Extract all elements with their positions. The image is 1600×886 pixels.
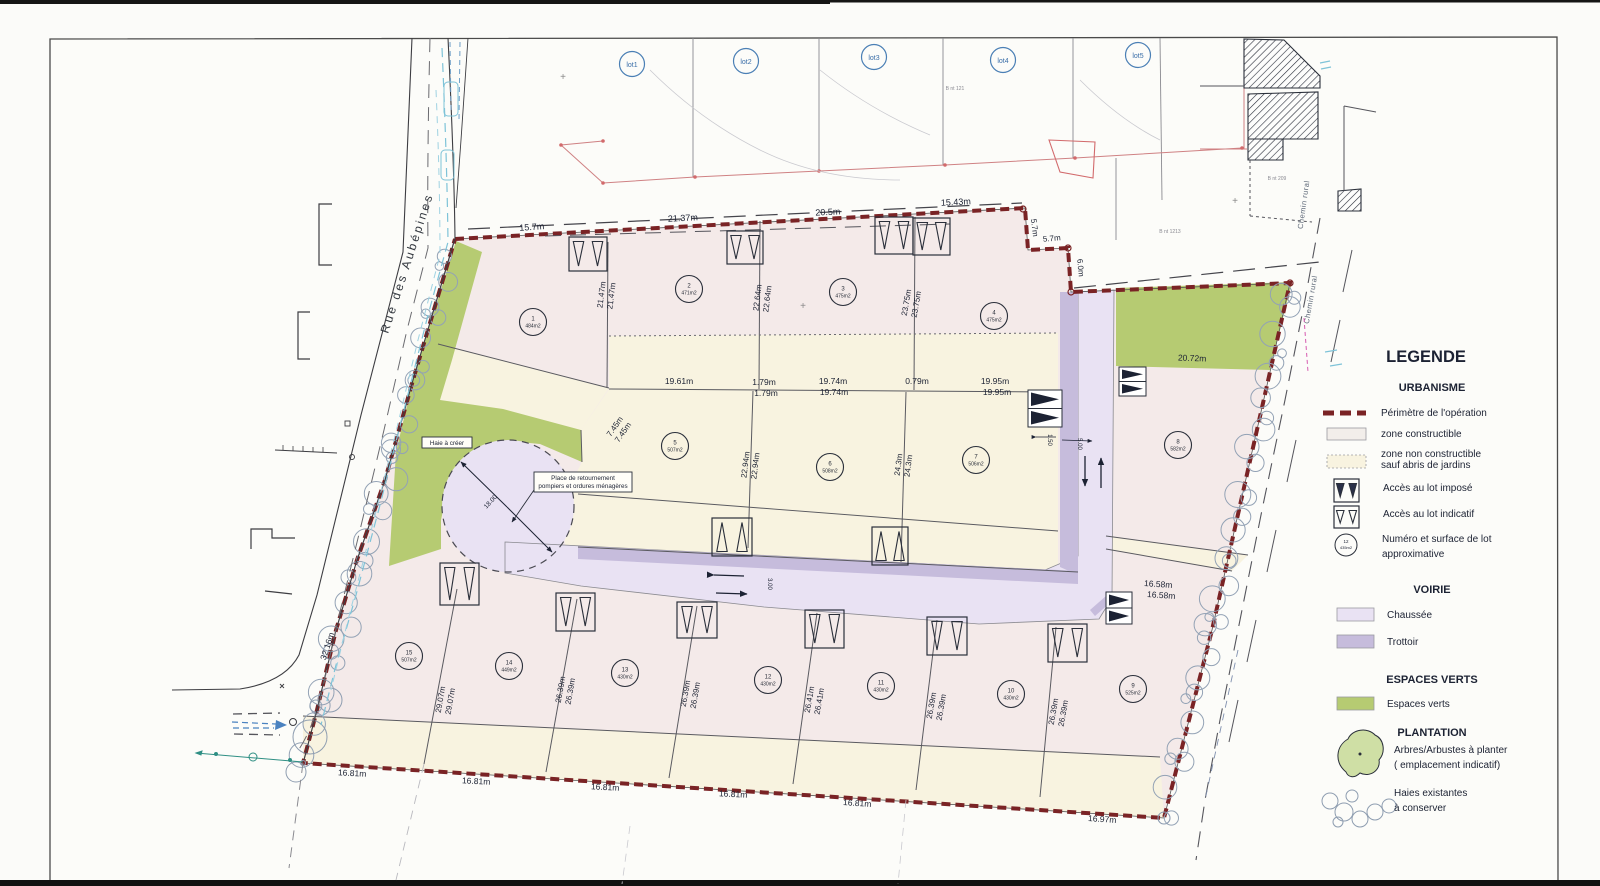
svg-text:Haies existantes: Haies existantes: [1394, 788, 1467, 799]
svg-text:Périmètre de l'opération: Périmètre de l'opération: [1381, 408, 1487, 419]
svg-text:19.74m: 19.74m: [819, 376, 847, 386]
svg-text:1.79m: 1.79m: [752, 377, 776, 387]
svg-text:URBANISME: URBANISME: [1399, 382, 1466, 394]
svg-text:525m2: 525m2: [1125, 691, 1141, 697]
svg-text:16.81m: 16.81m: [719, 788, 748, 799]
svg-text:VOIRIE: VOIRIE: [1413, 584, 1450, 596]
svg-text:15.43m: 15.43m: [941, 196, 972, 208]
svg-text:Haie à créer: Haie à créer: [430, 440, 464, 447]
svg-text:507m2: 507m2: [401, 658, 417, 664]
svg-text:B nt 121: B nt 121: [946, 86, 965, 92]
svg-text:lot2: lot2: [740, 59, 751, 66]
svg-text:13: 13: [622, 668, 629, 674]
svg-text:475m2: 475m2: [986, 318, 1002, 324]
svg-text:approximative: approximative: [1382, 549, 1445, 560]
svg-text:Espaces verts: Espaces verts: [1387, 699, 1450, 710]
svg-text:ESPACES VERTS: ESPACES VERTS: [1386, 674, 1478, 686]
svg-text:20.5m: 20.5m: [815, 206, 841, 217]
svg-text:LEGENDE: LEGENDE: [1386, 348, 1466, 366]
svg-text:19.74m: 19.74m: [820, 387, 848, 397]
svg-text:16.81m: 16.81m: [843, 797, 872, 809]
svg-text:Numéro et surface de lot: Numéro et surface de lot: [1382, 534, 1492, 545]
svg-text:484m2: 484m2: [525, 324, 541, 330]
svg-text:12: 12: [765, 675, 772, 681]
svg-text:475m2: 475m2: [835, 294, 851, 300]
svg-text:Place de retournement: Place de retournement: [551, 475, 615, 482]
svg-text:3.00: 3.00: [766, 578, 772, 590]
svg-text:B nt 209: B nt 209: [1268, 176, 1287, 182]
svg-text:Trottoir: Trottoir: [1387, 637, 1419, 648]
svg-text:471m2: 471m2: [681, 291, 697, 297]
svg-text:Chaussée: Chaussée: [1387, 610, 1432, 621]
svg-text:16.81m: 16.81m: [338, 767, 367, 778]
svg-text:19.61m: 19.61m: [665, 376, 693, 386]
svg-text:435m2: 435m2: [1340, 545, 1353, 550]
svg-text:5.7m: 5.7m: [1043, 233, 1062, 244]
svg-text:Accès au lot indicatif: Accès au lot indicatif: [1383, 509, 1474, 520]
svg-text:16.81m: 16.81m: [591, 781, 620, 792]
svg-text:582m2: 582m2: [1170, 447, 1186, 453]
svg-text:1.50: 1.50: [1046, 434, 1052, 446]
svg-text:Arbres/Arbustes à planter: Arbres/Arbustes à planter: [1394, 745, 1508, 756]
svg-text:20.72m: 20.72m: [1178, 353, 1207, 364]
svg-text:Accès au lot imposé: Accès au lot imposé: [1383, 483, 1473, 494]
svg-text:+: +: [800, 301, 806, 312]
svg-text:16.58m: 16.58m: [1147, 589, 1176, 601]
svg-text:lot4: lot4: [997, 58, 1008, 65]
svg-text:14: 14: [506, 661, 513, 667]
svg-text:+: +: [1232, 196, 1238, 207]
svg-text:10: 10: [1008, 689, 1015, 695]
svg-text:19.95m: 19.95m: [981, 376, 1009, 386]
svg-text:pompiers et ordures ménagères: pompiers et ordures ménagères: [538, 483, 627, 490]
svg-text:B nt 1213: B nt 1213: [1159, 229, 1181, 235]
svg-text:12: 12: [1343, 539, 1349, 544]
svg-text:16.81m: 16.81m: [462, 775, 491, 786]
svg-text:430m2: 430m2: [1003, 696, 1019, 702]
svg-text:11: 11: [878, 681, 885, 687]
svg-text:5.00: 5.00: [1076, 438, 1082, 450]
svg-text:430m2: 430m2: [760, 682, 776, 688]
svg-text:zone non constructible: zone non constructible: [1381, 449, 1482, 460]
svg-text:lot5: lot5: [1132, 53, 1143, 60]
svg-text:430m2: 430m2: [617, 675, 633, 681]
svg-text:PLANTATION: PLANTATION: [1397, 727, 1466, 739]
svg-text:0.79m: 0.79m: [905, 376, 929, 386]
svg-text:449m2: 449m2: [501, 668, 517, 674]
svg-text:lot1: lot1: [626, 62, 637, 69]
svg-text:+: +: [560, 72, 566, 83]
svg-text:430m2: 430m2: [873, 688, 889, 694]
svg-text:508m2: 508m2: [822, 469, 838, 475]
svg-text:à conserver: à conserver: [1394, 803, 1447, 814]
svg-text:21.37m: 21.37m: [668, 212, 699, 224]
svg-text:506m2: 506m2: [968, 462, 984, 468]
svg-text:507m2: 507m2: [667, 448, 683, 454]
svg-text:16.97m: 16.97m: [1088, 813, 1117, 825]
svg-text:15: 15: [406, 651, 413, 657]
svg-text:19.95m: 19.95m: [983, 387, 1011, 397]
svg-text:6.0m: 6.0m: [1075, 259, 1086, 278]
svg-text:zone constructible: zone constructible: [1381, 429, 1462, 440]
svg-text:15.7m: 15.7m: [519, 221, 545, 233]
svg-text:lot3: lot3: [868, 55, 879, 62]
svg-text:sauf abris de jardins: sauf abris de jardins: [1381, 460, 1471, 471]
svg-text:1.79m: 1.79m: [754, 388, 778, 398]
svg-text:( emplacement indicatif): ( emplacement indicatif): [1394, 760, 1500, 771]
